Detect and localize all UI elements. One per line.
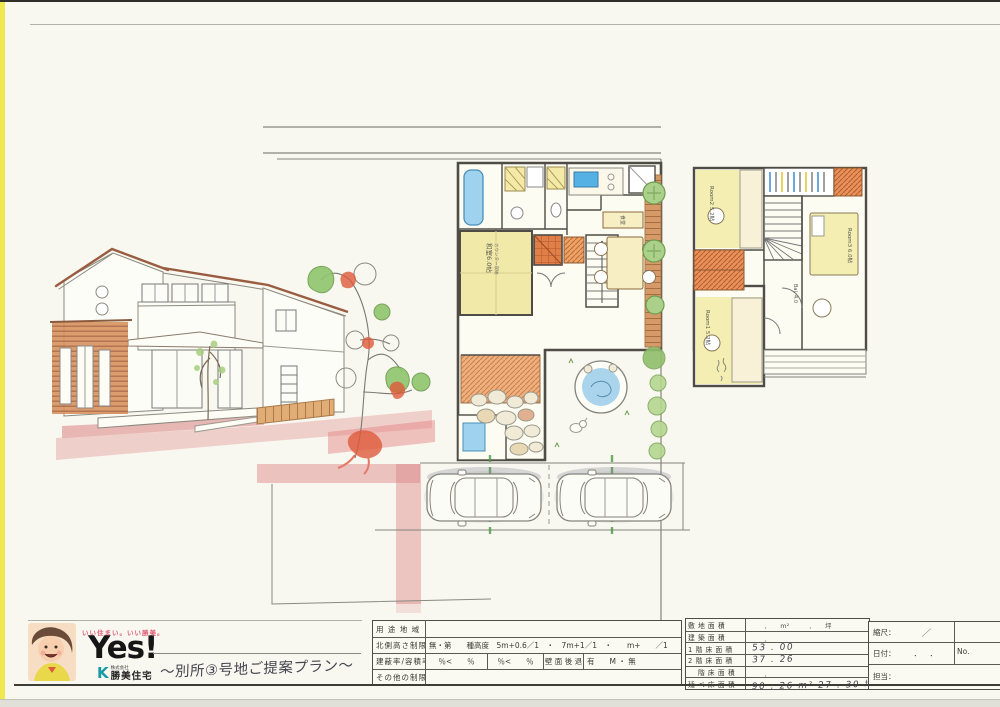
shoe-closet: [564, 237, 584, 263]
area-r4-label: 2 階 床 面 積: [686, 655, 746, 666]
reg-row3-cell3: 壁 面 後 退: [544, 653, 584, 670]
area-2f-value: 37 . 26: [751, 655, 794, 666]
washitsu-label: 和室6.0帖: [485, 243, 494, 273]
closet-strip: [764, 168, 862, 196]
staff-label: 担当：: [873, 671, 896, 682]
area-r3-label: 1 階 床 面 積: [686, 643, 746, 654]
left-closets: [694, 250, 744, 290]
scanned-plan-sheet: 和室6.0帖 カウンター収納: [0, 0, 1000, 707]
company-title: 勝美住宅: [111, 672, 153, 682]
meta-divider-1: [954, 622, 955, 642]
date-label: 日付：: [873, 648, 896, 659]
scan-line: [30, 24, 1000, 25]
area-r1-units: ． m² ． 坪: [764, 620, 831, 630]
washitsu-sub-label: カウンター収納: [493, 243, 500, 275]
staircase-2f: [764, 196, 802, 260]
garden-bushes: [643, 347, 667, 459]
reg-row2-label: 北側高さ制限: [373, 637, 426, 654]
child-photo: [28, 623, 76, 681]
floor-plan-1f: 和室6.0帖 カウンター収納: [458, 163, 665, 460]
reg-row2-value: 無・第 種高度 5m+0.6／1 ・ 7m+1／1 ・ m+ ／1: [426, 639, 681, 652]
area-table: 敷 地 面 積 ． m² ． 坪 建 築 面 積 ． 1 階 床 面 積 53 …: [685, 618, 870, 690]
room1-label: Room1 5.2帖: [704, 310, 712, 346]
titleblock-top-line: [28, 620, 362, 621]
scan-edge-top: [0, 0, 1000, 2]
brand-logo: Yes!: [88, 630, 157, 666]
room3-label: Room3 6.0帖: [846, 228, 854, 264]
reg-row3-cell4: 有 M ・ 無: [584, 655, 681, 668]
area-r2-dot: ．: [764, 633, 771, 643]
company-mark: K: [97, 666, 109, 681]
room2-label: Room2 5.2帖: [708, 186, 716, 222]
area-r5-label: 階 床 面 積: [686, 667, 746, 678]
company-name: K 株式会社 勝美住宅: [97, 666, 153, 681]
car-2: [554, 467, 674, 526]
reg-row3-cell1: ％< ％: [426, 653, 488, 670]
scan-edge-bottom: [0, 699, 1000, 707]
meta-divider-2: [954, 643, 955, 664]
reg-row1-label: 用 途 地 域: [373, 620, 426, 638]
closet-corner: [834, 168, 862, 196]
dining-label: 食堂: [619, 215, 626, 225]
entrance-wood: [50, 320, 132, 414]
plan-title: 〜別所③号地ご提案プラン〜: [160, 653, 376, 682]
pond: [575, 361, 627, 413]
date-dots: ．．: [914, 648, 950, 659]
area-r1-label: 敷 地 面 積: [686, 619, 746, 631]
dining-table: [607, 237, 643, 289]
road-wash: [257, 464, 421, 613]
small-dog: [570, 418, 587, 433]
reg-row1-value: [426, 628, 681, 630]
kitchen: [569, 166, 655, 195]
area-r5-dot: ．: [764, 668, 771, 678]
meta-box: 縮尺： ／ 日付： ．． No. 担当：: [868, 621, 1000, 690]
floor-plan-2f: Room2 5.2帖: [688, 158, 873, 393]
area-r2-label: 建 築 面 積: [686, 632, 746, 643]
balcony: [764, 350, 866, 377]
parking-area: [375, 455, 690, 535]
scale-label: 縮尺：: [873, 627, 896, 638]
number-label: No.: [957, 647, 969, 656]
washitsu-room: 和室6.0帖 カウンター収納: [460, 231, 532, 315]
regulation-table: 用 途 地 域 北側高さ制限 無・第 種高度 5m+0.6／1 ・ 7m+1／1…: [372, 620, 682, 686]
titleblock-bottom-rule: [14, 684, 1000, 686]
car-1: [424, 467, 544, 526]
room1: Room1 5.2帖: [696, 297, 762, 384]
reg-row3-cell2: ％< ％: [488, 653, 544, 670]
balcony-label: Bal. 4.0: [792, 284, 798, 303]
room2: Room2 5.2帖: [694, 170, 764, 250]
scale-value: ／: [921, 626, 931, 639]
bathtub: [464, 170, 483, 225]
courtyard: [555, 347, 667, 459]
scan-edge-yellow: [0, 0, 5, 707]
reg-row3-label: 建蔽率/容積率: [373, 653, 426, 670]
area-1f-value: 53 . 00: [751, 643, 794, 654]
site-and-1f-plan: 和室6.0帖 カウンター収納: [255, 115, 690, 640]
reg-row4-value: [426, 677, 681, 679]
